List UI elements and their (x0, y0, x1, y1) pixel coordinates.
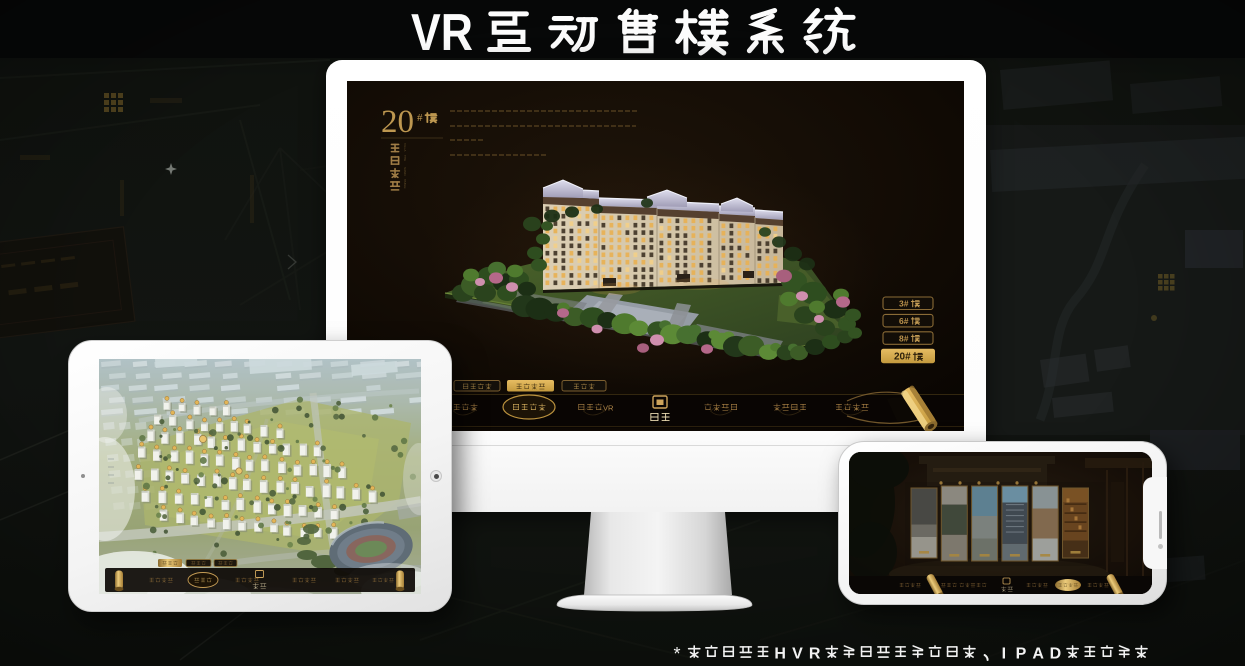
svg-text:D: D (1050, 646, 1062, 663)
svg-text:SAND: SAND (403, 167, 407, 176)
svg-text:VILLA: VILLA (403, 143, 407, 152)
svg-text:VR: VR (411, 4, 473, 58)
svg-text:#: # (417, 112, 423, 124)
svg-text:20: 20 (381, 104, 414, 140)
svg-text:VR: VR (603, 404, 614, 413)
svg-text:6#: 6# (899, 316, 909, 326)
svg-text:8#: 8# (899, 333, 909, 343)
svg-text:V: V (792, 646, 803, 663)
svg-text:3#: 3# (899, 299, 909, 309)
svg-text:*: * (673, 644, 680, 664)
svg-text:R: R (809, 646, 821, 663)
svg-text:A: A (1032, 646, 1044, 663)
svg-text:P: P (1016, 646, 1027, 663)
svg-text:TABLE: TABLE (403, 179, 407, 189)
svg-text:H: H (774, 646, 786, 663)
svg-text:I: I (1002, 646, 1006, 663)
svg-text:20#: 20# (894, 352, 911, 363)
svg-text:THE: THE (403, 155, 407, 161)
